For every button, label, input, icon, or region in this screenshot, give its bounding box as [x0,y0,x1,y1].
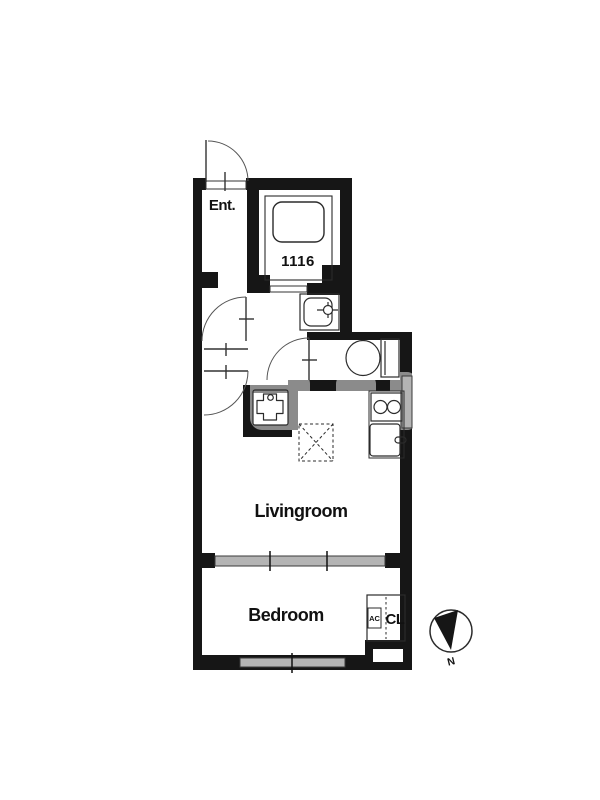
entrance-label: Ent. [209,197,236,214]
bathtub [273,202,324,242]
entrance-threshold [206,181,246,189]
interior-door-lower [204,365,248,415]
interior-door-upper [202,297,254,356]
refrigerator-x [299,424,333,461]
wall-bath-bottom-right [307,283,322,295]
wall-cutouts [373,649,403,662]
ac-label: AC [369,614,380,623]
toilet-tank [381,339,399,377]
wall-top-stub-left [193,178,206,190]
unit-bath-number: 1116 [281,253,315,270]
entrance-door-swing [208,141,248,181]
wall-top-main [246,178,352,190]
entrance-door [206,140,248,191]
washbasin-counter [300,294,339,330]
washbasin [300,294,339,330]
sliding-partition-track [215,556,385,566]
floorplan-canvas: Ent. 1116 Livingroom Bedroom AC CL N [0,0,600,800]
wall-partition-stub-right [385,553,412,568]
bath-door [270,286,307,292]
wall-bath-bottom-left [247,275,270,293]
wall-right-upper [340,178,352,332]
pan-drain [268,395,274,401]
watermark-blob [336,374,376,430]
wall-left-outer [193,178,202,670]
bedroom-label: Bedroom [248,605,324,625]
washbasin-faucet [324,306,333,315]
wall-partition-stub-left [193,553,215,568]
wall-corridor-stub [202,272,218,288]
north-compass [430,610,472,652]
floorplan-svg: Ent. 1116 Livingroom Bedroom AC CL N [0,0,600,800]
toilet [346,339,399,377]
livingroom-label: Livingroom [255,501,348,521]
refrigerator-space [299,424,333,461]
compass-needle [434,610,458,650]
toilet-bowl [346,341,380,376]
closet-bottom-inset [373,649,403,662]
compass-north-label: N [446,655,456,668]
closet-label: CL [386,611,405,628]
